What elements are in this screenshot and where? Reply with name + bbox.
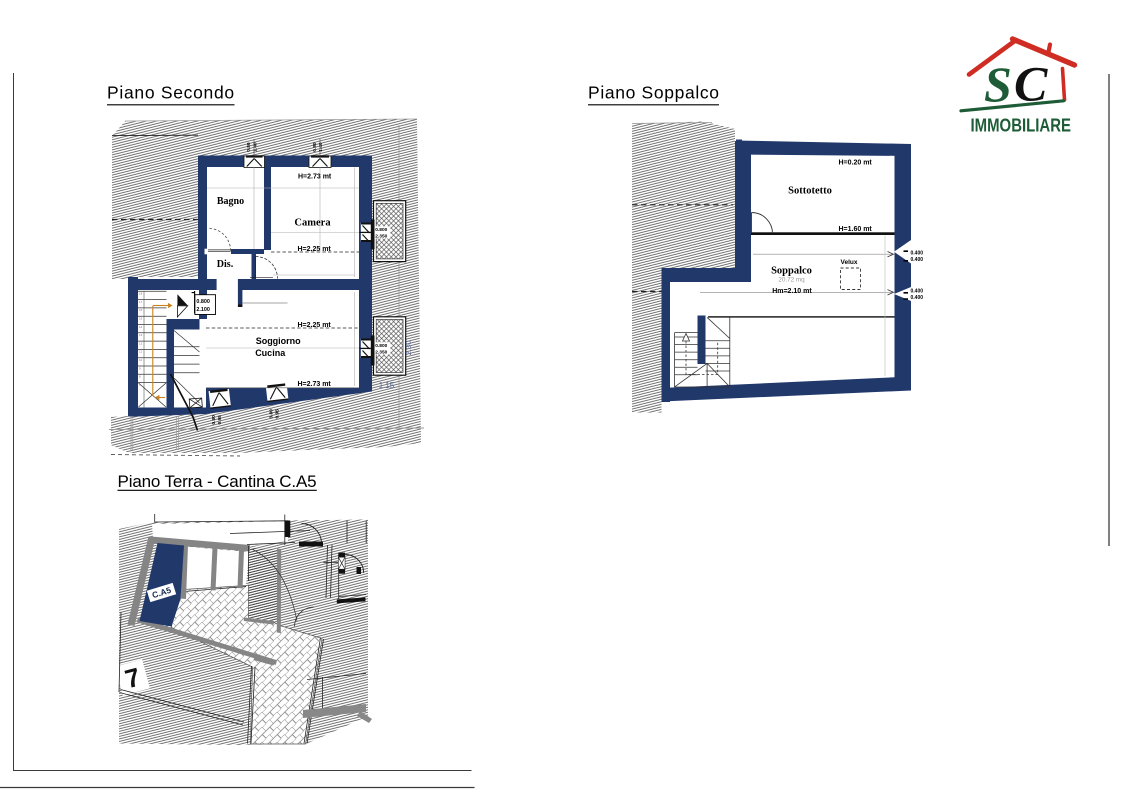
svg-text:2.30: 2.30: [404, 341, 413, 356]
svg-text:Bagno: Bagno: [217, 196, 244, 207]
svg-text:S: S: [984, 56, 1012, 112]
svg-text:15: 15: [139, 317, 143, 321]
svg-text:13: 13: [139, 333, 143, 337]
svg-text:0.80: 0.80: [268, 409, 274, 419]
svg-text:17: 17: [139, 300, 143, 304]
svg-text:Camera: Camera: [294, 217, 331, 228]
svg-text:Soggiorno: Soggiorno: [256, 336, 301, 346]
svg-text:16: 16: [139, 308, 143, 312]
svg-text:2.350: 2.350: [375, 349, 387, 355]
svg-text:Piano Terra - Cantina C.A5: Piano Terra - Cantina C.A5: [118, 472, 317, 491]
svg-text:0.95: 0.95: [217, 415, 223, 425]
svg-text:1.40: 1.40: [252, 142, 258, 152]
svg-text:0.800: 0.800: [196, 299, 210, 305]
svg-text:Cucina: Cucina: [255, 348, 286, 358]
svg-text:0.400: 0.400: [911, 289, 924, 295]
svg-text:Piano Soppalco: Piano Soppalco: [588, 83, 720, 103]
svg-text:H=2.73 mt: H=2.73 mt: [298, 174, 332, 181]
svg-text:Sottotetto: Sottotetto: [788, 186, 832, 197]
svg-text:0.80: 0.80: [211, 415, 217, 425]
svg-text:11: 11: [139, 350, 142, 354]
svg-text:H=1.60 mt: H=1.60 mt: [839, 226, 873, 233]
svg-text:14: 14: [139, 325, 143, 329]
svg-text:0.80: 0.80: [246, 142, 252, 152]
svg-text:10: 10: [139, 358, 143, 362]
svg-text:1.40: 1.40: [318, 142, 324, 152]
svg-text:0.400: 0.400: [911, 257, 924, 263]
svg-text:H=2.25 mt: H=2.25 mt: [298, 246, 332, 253]
svg-text:Dis.: Dis.: [217, 259, 234, 270]
svg-text:H=2.73 mt: H=2.73 mt: [298, 381, 332, 388]
svg-text:Piano Secondo: Piano Secondo: [107, 83, 235, 103]
svg-text:0.400: 0.400: [911, 295, 924, 301]
svg-text:0.400: 0.400: [911, 251, 924, 257]
svg-text:12: 12: [139, 341, 143, 345]
svg-text:IMMOBILIARE: IMMOBILIARE: [971, 115, 1072, 136]
svg-text:18: 18: [139, 292, 143, 296]
svg-text:0.800: 0.800: [375, 343, 387, 349]
svg-text:0.800: 0.800: [375, 227, 387, 233]
svg-text:Soppalco: Soppalco: [771, 266, 812, 277]
svg-text:Velux: Velux: [841, 259, 858, 266]
svg-text:0.80: 0.80: [312, 142, 318, 152]
svg-text:0.95: 0.95: [275, 409, 281, 419]
svg-text:2.350: 2.350: [375, 233, 387, 239]
svg-text:1.15: 1.15: [379, 381, 395, 390]
svg-text:20.72 mq: 20.72 mq: [778, 277, 805, 284]
svg-text:Hm=2.10 mt: Hm=2.10 mt: [772, 288, 812, 295]
svg-text:2.100: 2.100: [196, 307, 210, 313]
svg-text:H=2.25 mt: H=2.25 mt: [298, 322, 332, 329]
svg-text:H=0.20 mt: H=0.20 mt: [839, 159, 873, 166]
